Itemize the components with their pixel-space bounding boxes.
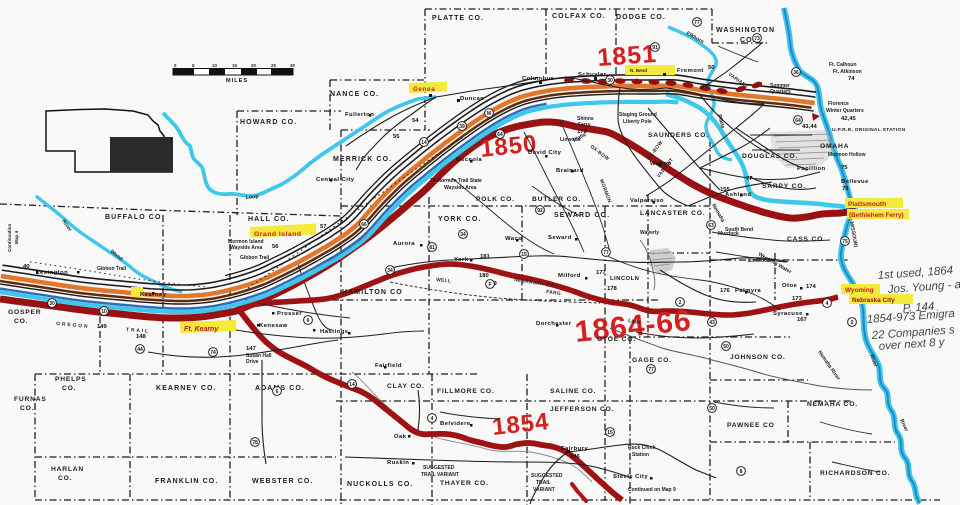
svg-text:DOUGLAS CO.: DOUGLAS CO. [742,153,798,160]
svg-text:Kenesaw: Kenesaw [259,323,288,329]
svg-text:10: 10 [101,309,107,315]
svg-text:64: 64 [497,132,503,138]
svg-text:75: 75 [842,239,848,245]
svg-text:64: 64 [795,118,801,124]
svg-text:Map 4: Map 4 [14,231,19,244]
svg-text:4: 4 [826,301,829,307]
svg-text:Lexington: Lexington [36,270,68,276]
svg-text:THAYER CO.: THAYER CO. [440,480,489,487]
svg-text:34: 34 [460,232,466,238]
svg-text:TRAIL VARIANT: TRAIL VARIANT [421,472,459,478]
svg-text:(Bethlehem Ferry): (Bethlehem Ferry) [849,212,904,219]
svg-text:South Bend: South Bend [725,227,753,233]
svg-text:Wayside Area: Wayside Area [444,185,477,191]
svg-text:57: 57 [320,224,327,230]
svg-text:Quarters: Quarters [770,89,791,95]
svg-text:Waco: Waco [505,236,522,242]
svg-text:Duncan: Duncan [460,96,484,102]
svg-text:77: 77 [603,250,609,256]
svg-text:6: 6 [276,389,279,395]
svg-text:Otoe: Otoe [782,283,797,289]
svg-text:MILES: MILES [226,78,248,84]
svg-text:Ft. Calhoun: Ft. Calhoun [829,62,857,68]
svg-text:David City: David City [528,150,562,156]
svg-text:Bellevue: Bellevue [841,179,869,185]
svg-text:LINCOLN: LINCOLN [610,276,639,282]
svg-text:WASHINGTON: WASHINGTON [716,27,775,34]
svg-text:Continuation: Continuation [7,223,12,252]
svg-text:Valparaiso: Valparaiso [630,198,664,204]
svg-text:30: 30 [49,301,55,307]
svg-text:Milford: Milford [558,273,581,279]
svg-text:Brainard: Brainard [556,168,584,174]
svg-text:FILLMORE CO.: FILLMORE CO. [437,388,495,395]
svg-text:147: 147 [246,346,257,352]
svg-text:SUGGESTED: SUGGESTED [423,465,455,471]
svg-text:Station: Station [632,452,649,458]
svg-text:HOWARD CO.: HOWARD CO. [240,119,297,126]
svg-text:Drive: Drive [246,359,259,365]
svg-text:148: 148 [136,334,147,340]
svg-text:RICHARDSON CO.: RICHARDSON CO. [820,470,890,477]
svg-text:Wayside Area: Wayside Area [230,245,263,251]
svg-text:BUFFALO CO: BUFFALO CO [105,214,162,221]
svg-text:14: 14 [349,382,355,388]
svg-text:Florence: Florence [828,101,849,107]
svg-text:177: 177 [596,270,607,276]
svg-text:Ruskin: Ruskin [387,460,409,466]
svg-text:8: 8 [740,469,743,475]
svg-text:TRAIL: TRAIL [536,480,551,486]
svg-text:77: 77 [648,367,654,373]
svg-text:50: 50 [709,406,715,412]
svg-text:DODGE CO.: DODGE CO. [616,14,666,21]
svg-text:167: 167 [797,317,808,323]
svg-text:178: 178 [607,286,618,292]
svg-text:Osceola: Osceola [456,157,482,163]
svg-text:15: 15 [521,252,527,258]
svg-text:78: 78 [252,440,258,446]
svg-text:GAGE CO.: GAGE CO. [632,357,672,364]
svg-text:Ft. Atkinson: Ft. Atkinson [833,69,862,75]
svg-text:LANCASTER CO.: LANCASTER CO. [640,210,705,217]
svg-text:N. Bend: N. Bend [630,68,647,73]
svg-text:92: 92 [537,208,543,214]
svg-text:BUTLER CO.: BUTLER CO. [532,196,581,203]
svg-text:181: 181 [480,254,491,260]
svg-text:CLAY CO.: CLAY CO. [387,383,425,390]
svg-text:34: 34 [387,268,393,274]
svg-text:146: 146 [570,454,581,460]
svg-text:63: 63 [708,223,714,229]
svg-text:Nebraska City: Nebraska City [852,297,895,304]
svg-text:81: 81 [429,245,435,251]
svg-text:10: 10 [212,63,217,68]
svg-text:Grand Island: Grand Island [254,231,302,238]
svg-text:15: 15 [607,430,613,436]
svg-text:JEFFERSON CO.: JEFFERSON CO. [550,406,614,413]
svg-text:YORK CO.: YORK CO. [438,216,481,223]
svg-text:Papillion: Papillion [797,166,826,172]
svg-text:54: 54 [412,118,419,124]
svg-text:Central City: Central City [316,177,355,183]
svg-text:176: 176 [720,288,731,294]
svg-text:OTOE CO.: OTOE CO. [597,336,636,343]
svg-text:14: 14 [421,140,427,146]
svg-text:40: 40 [23,264,30,270]
svg-text:M: M [487,111,491,117]
svg-text:2: 2 [679,300,682,306]
svg-text:Plattsmouth: Plattsmouth [848,201,886,208]
svg-text:WEBSTER CO.: WEBSTER CO. [252,478,314,485]
svg-text:Genoa: Genoa [413,86,435,93]
svg-text:OMAHA: OMAHA [820,143,849,150]
svg-text:NUCKOLLS CO.: NUCKOLLS CO. [347,481,413,488]
svg-text:15: 15 [232,63,237,68]
svg-text:74: 74 [848,76,855,82]
svg-text:74: 74 [210,350,216,356]
svg-text:Hastings: Hastings [320,329,349,335]
svg-text:CASS CO: CASS CO [787,236,823,243]
svg-text:FRANKLIN CO.: FRANKLIN CO. [155,478,218,485]
svg-text:Seward: Seward [548,235,572,241]
svg-text:Aurora: Aurora [393,241,415,247]
svg-text:U.P.R.R. ORIGINAL STATION: U.P.R.R. ORIGINAL STATION [832,127,906,133]
svg-text:Gibbon Trail: Gibbon Trail [240,255,270,261]
svg-text:50: 50 [708,65,715,71]
svg-text:CO.: CO. [14,318,28,325]
svg-text:30: 30 [290,63,295,68]
svg-text:Liberty Pole: Liberty Pole [623,119,652,125]
svg-text:Schuyler: Schuyler [578,72,607,78]
svg-text:HAMILTON CO: HAMILTON CO [342,289,403,296]
svg-text:30: 30 [607,78,613,84]
svg-text:HALL CO.: HALL CO. [248,216,290,223]
svg-text:56: 56 [272,244,279,250]
svg-text:91: 91 [652,45,658,51]
svg-text:HARLAN: HARLAN [51,466,84,473]
svg-text:50: 50 [723,344,729,350]
svg-text:NEMAHA CO.: NEMAHA CO. [807,401,858,408]
svg-text:Prosser: Prosser [277,311,302,317]
svg-text:NANCE CO.: NANCE CO. [330,91,379,98]
svg-text:PHELPS: PHELPS [55,376,87,383]
svg-text:43,44: 43,44 [802,124,817,130]
svg-text:4: 4 [431,416,434,422]
svg-text:SUGGESTED: SUGGESTED [531,473,563,479]
svg-text:SALINE CO.: SALINE CO. [550,388,596,395]
svg-text:Oak: Oak [394,434,407,440]
svg-text:JOHNSON CO.: JOHNSON CO. [730,354,786,361]
svg-text:66: 66 [361,222,367,228]
svg-text:Mormon Hollow: Mormon Hollow [828,152,866,158]
svg-text:FURNAS: FURNAS [14,396,47,403]
svg-text:Gibbon Trail: Gibbon Trail [97,266,127,272]
svg-text:149: 149 [97,324,108,330]
svg-text:SAUNDERS CO.: SAUNDERS CO. [648,132,709,139]
svg-text:36: 36 [793,70,799,76]
svg-text:173: 173 [792,296,803,302]
svg-text:39: 39 [459,124,465,130]
svg-text:CO.: CO. [58,475,72,482]
svg-text:25: 25 [271,63,276,68]
svg-text:COLFAX CO.: COLFAX CO. [552,13,606,20]
svg-text:42,45: 42,45 [841,116,856,122]
svg-text:Ft. Kearny: Ft. Kearny [184,326,219,333]
svg-text:CO.: CO. [62,385,76,392]
svg-text:Wyoming: Wyoming [845,287,874,294]
svg-text:77: 77 [694,20,700,26]
svg-text:Ferry: Ferry [578,122,591,128]
svg-text:Waverly: Waverly [640,230,659,236]
svg-text:20: 20 [251,63,256,68]
svg-text:180: 180 [479,273,490,279]
svg-text:79: 79 [842,186,849,192]
svg-text:Staging Ground: Staging Ground [619,112,657,118]
svg-text:POLK CO.: POLK CO. [476,196,515,203]
svg-text:Rock Creek: Rock Creek [628,445,656,451]
svg-text:Fairfield: Fairfield [375,363,402,369]
svg-text:55: 55 [393,134,400,140]
svg-text:KEARNEY CO.: KEARNEY CO. [156,385,217,392]
svg-text:Fremont: Fremont [677,68,704,74]
svg-text:44: 44 [137,347,143,353]
svg-text:Dorchester: Dorchester [536,321,572,327]
svg-text:Belvidere: Belvidere [440,421,471,427]
svg-text:CO.: CO. [20,405,34,412]
svg-text:Winter Quarters: Winter Quarters [826,108,864,114]
svg-text:6: 6 [307,318,310,324]
svg-text:174: 174 [806,284,817,290]
svg-text:PLATTE CO.: PLATTE CO. [432,15,484,22]
svg-text:43: 43 [709,320,715,326]
svg-text:F: F [488,282,491,288]
svg-text:73: 73 [754,36,760,42]
svg-text:PAWNEE CO: PAWNEE CO [727,422,775,429]
svg-text:2: 2 [851,320,854,326]
svg-text:SEWARD CO.: SEWARD CO. [554,212,610,219]
svg-text:GOSPER: GOSPER [8,309,41,316]
svg-text:75: 75 [841,165,848,171]
svg-text:Continued on Map 9: Continued on Map 9 [628,487,676,493]
